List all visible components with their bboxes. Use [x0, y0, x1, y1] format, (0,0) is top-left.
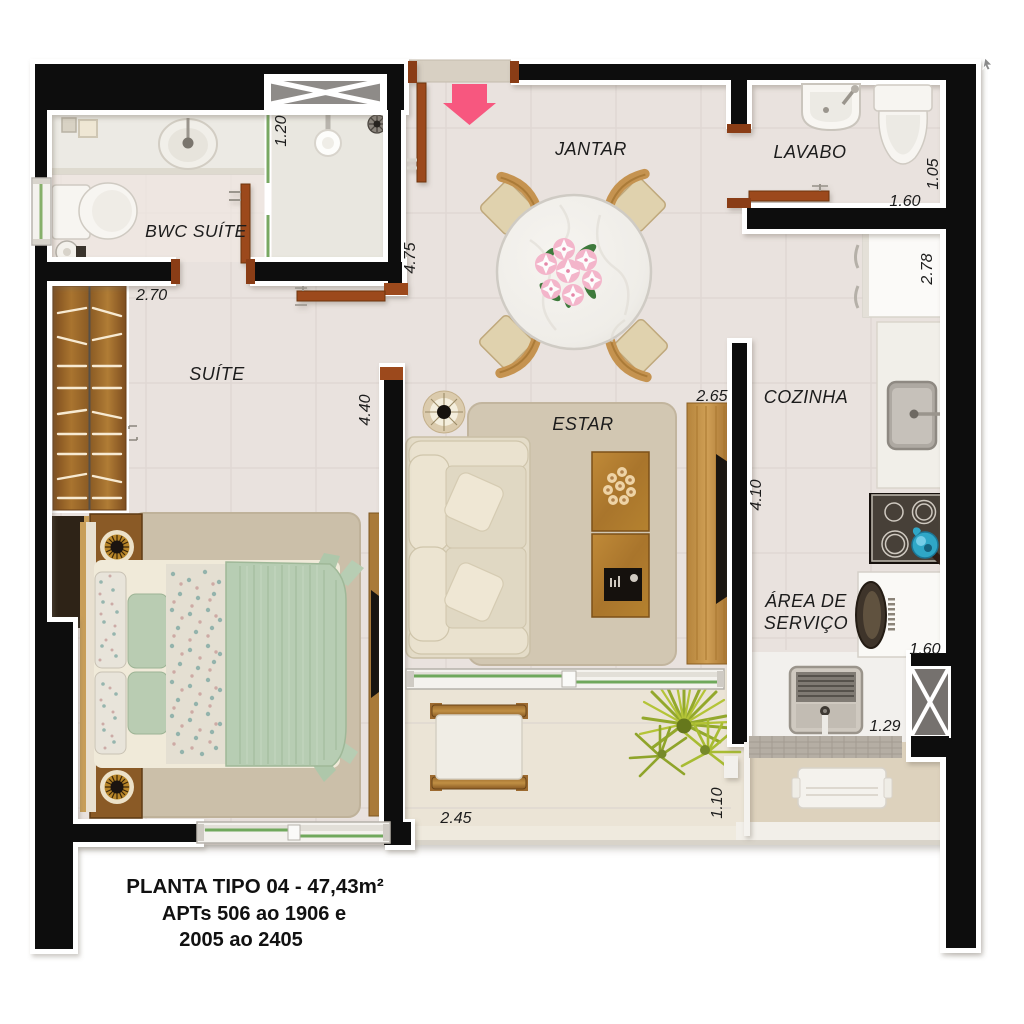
- svg-text:LAVABO: LAVABO: [773, 142, 846, 162]
- svg-text:PLANTA TIPO 04 - 47,43m²: PLANTA TIPO 04 - 47,43m²: [126, 875, 384, 898]
- svg-text:2.65: 2.65: [695, 388, 727, 405]
- svg-text:1.29: 1.29: [869, 718, 900, 735]
- svg-text:APTs 506 ao 1906 e: APTs 506 ao 1906 e: [162, 903, 346, 925]
- svg-text:1.05: 1.05: [925, 158, 942, 189]
- svg-text:1.60: 1.60: [889, 193, 920, 210]
- svg-text:JANTAR: JANTAR: [554, 139, 627, 159]
- svg-text:SUÍTE: SUÍTE: [189, 364, 245, 384]
- svg-text:2005 ao 2405: 2005 ao 2405: [179, 929, 302, 951]
- svg-text:4.75: 4.75: [402, 242, 419, 273]
- svg-text:1.10: 1.10: [709, 787, 726, 818]
- svg-text:1.60: 1.60: [909, 641, 940, 658]
- svg-text:ESTAR: ESTAR: [552, 414, 613, 434]
- svg-text:2.70: 2.70: [135, 287, 167, 304]
- svg-text:ÁREA DE: ÁREA DE: [764, 591, 847, 611]
- svg-text:2.45: 2.45: [439, 810, 471, 827]
- svg-text:1.20: 1.20: [273, 115, 290, 146]
- svg-text:2.78: 2.78: [919, 253, 936, 285]
- svg-text:4.40: 4.40: [357, 394, 374, 425]
- svg-text:BWC SUÍTE: BWC SUÍTE: [145, 221, 247, 241]
- svg-text:SERVIÇO: SERVIÇO: [764, 613, 848, 633]
- svg-text:COZINHA: COZINHA: [764, 387, 849, 407]
- svg-text:4.10: 4.10: [748, 479, 765, 510]
